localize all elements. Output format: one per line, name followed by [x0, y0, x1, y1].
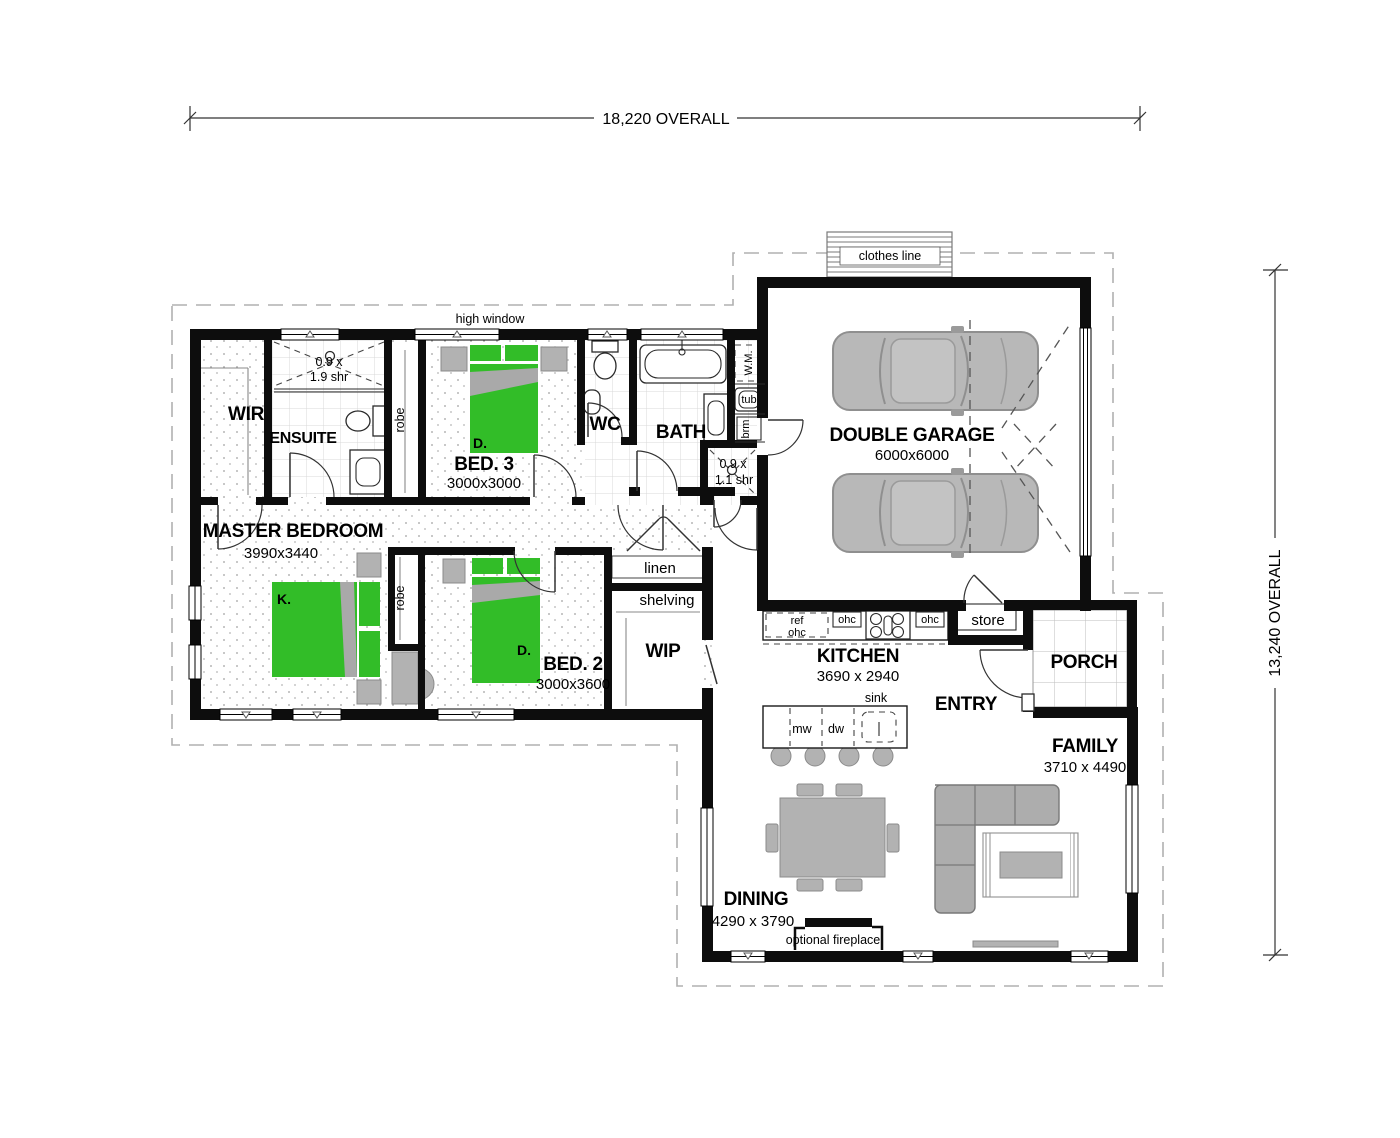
- stool: [771, 746, 791, 766]
- robe-label: robe: [393, 407, 407, 432]
- pillow: [359, 631, 380, 677]
- bedside-table: [357, 553, 381, 577]
- room-label-wir: WIR: [228, 404, 265, 425]
- overall-height-dimension: 13,240 OVERALL: [1267, 549, 1284, 676]
- bed-type-double: D.: [517, 642, 531, 658]
- floor-plan-drawing: 18,220 OVERALL 13,240 OVERALL high windo…: [0, 0, 1400, 1138]
- bath-shower-size: 0.9 x: [719, 457, 747, 471]
- fireplace-box: [805, 918, 872, 927]
- room-label-family: FAMILY: [1052, 736, 1119, 757]
- chair: [836, 879, 862, 891]
- overall-width-dimension: 18,220 OVERALL: [602, 111, 729, 128]
- room-label-wip: WIP: [646, 641, 682, 662]
- rug-fringe: [983, 833, 991, 897]
- stool: [839, 746, 859, 766]
- kitchen-island: [763, 706, 907, 766]
- washing-machine-label: W.M.: [743, 350, 755, 375]
- room-size-dining: 4290 x 3790: [712, 913, 795, 930]
- rug-fringe: [1070, 833, 1078, 897]
- ohc-label: ohc: [921, 614, 939, 626]
- fridge-label: ref: [791, 615, 805, 627]
- microwave-label: mw: [792, 722, 812, 736]
- pillow: [470, 345, 501, 361]
- bedside-table: [443, 559, 465, 583]
- toilet-bowl: [346, 411, 370, 431]
- clothes-line-label: clothes line: [859, 249, 922, 263]
- toilet-cistern: [373, 406, 385, 436]
- ensuite-shower-size: 1.9 shr: [310, 370, 348, 384]
- toilet-cistern: [592, 341, 618, 352]
- ohc-label: ohc: [838, 614, 856, 626]
- laundry-tub-label: tub: [741, 394, 756, 406]
- room-size-family: 3710 x 4490: [1044, 759, 1127, 776]
- room-size-garage: 6000x6000: [875, 447, 949, 464]
- front-door-panel: [1022, 694, 1034, 711]
- ensuite-vanity: [350, 450, 386, 494]
- wc-basin: [584, 390, 600, 414]
- coffee-table: [1000, 852, 1062, 878]
- shelving-label: shelving: [639, 592, 694, 609]
- stool: [873, 746, 893, 766]
- garage-door: [1080, 328, 1091, 556]
- door-arc-front: [980, 650, 1028, 698]
- chair: [766, 824, 778, 852]
- dishwasher-label: dw: [828, 722, 845, 736]
- room-label-porch: PORCH: [1050, 652, 1117, 673]
- room-label-dining: DINING: [724, 889, 789, 910]
- pillow: [359, 582, 380, 626]
- room-label-kitchen: KITCHEN: [817, 646, 899, 667]
- pillow: [507, 558, 540, 574]
- door-arc-garage-access: [768, 420, 803, 455]
- store-label: store: [971, 612, 1004, 629]
- sink-label: sink: [865, 691, 888, 705]
- room-size-kitchen: 3690 x 2940: [817, 668, 900, 685]
- room-size-master: 3990x3440: [244, 545, 318, 562]
- room-label-ensuite: ENSUITE: [269, 430, 337, 447]
- family-setting: [935, 785, 1078, 947]
- robe-label: robe: [393, 585, 407, 610]
- pillow: [472, 558, 503, 574]
- dining-table: [780, 798, 885, 877]
- ohc-label: ohc: [788, 627, 806, 639]
- corridor-floor: [713, 505, 757, 709]
- fireplace-label: optional fireplace: [786, 933, 881, 947]
- room-label-entry: ENTRY: [935, 694, 998, 715]
- chair: [797, 879, 823, 891]
- room-size-bed3: 3000x3000: [447, 475, 521, 492]
- stool: [805, 746, 825, 766]
- bedside-table: [357, 680, 381, 704]
- floor-plan-page: 18,220 OVERALL 13,240 OVERALL high windo…: [0, 0, 1400, 1138]
- room-label-wc: WC: [589, 414, 621, 435]
- room-size-bed2: 3000x3600: [536, 676, 610, 693]
- chair: [797, 784, 823, 796]
- room-label-bed3: BED. 3: [454, 454, 513, 475]
- room-label-bath: BATH: [656, 422, 706, 443]
- chair: [836, 784, 862, 796]
- ensuite-shower-size: 0.9 x: [315, 355, 343, 369]
- bed-type-double: D.: [473, 435, 487, 451]
- dining-table-setting: [766, 784, 899, 891]
- toilet-bowl: [594, 353, 616, 379]
- linen-label: linen: [644, 560, 676, 577]
- room-label-master: MASTER BEDROOM: [203, 521, 384, 542]
- broom-label: brm: [740, 420, 752, 439]
- chair: [887, 824, 899, 852]
- room-label-garage: DOUBLE GARAGE: [830, 425, 995, 446]
- door-arc-store: [964, 575, 974, 603]
- desk: [392, 652, 418, 704]
- room-label-bed2: BED. 2: [543, 654, 602, 675]
- bedside-table: [541, 347, 567, 371]
- bed-type-king: K.: [277, 591, 291, 607]
- pillow: [505, 345, 538, 361]
- bedside-table: [441, 347, 467, 371]
- tv-unit: [973, 941, 1058, 947]
- high-window-label: high window: [456, 312, 526, 326]
- bath-shower-size: 1.1 shr: [715, 473, 753, 487]
